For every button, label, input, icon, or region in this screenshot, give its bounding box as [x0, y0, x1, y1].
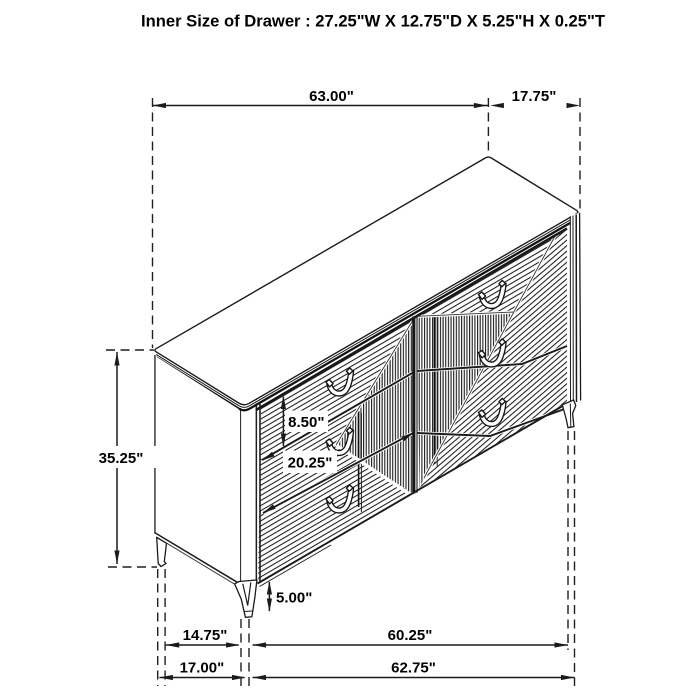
- svg-text:35.25": 35.25": [99, 450, 144, 467]
- svg-text:14.75": 14.75": [183, 627, 228, 644]
- svg-text:60.25": 60.25": [388, 627, 433, 644]
- svg-text:17.75": 17.75": [512, 88, 557, 105]
- svg-text:Inner Size of Drawer : 27.25"W: Inner Size of Drawer : 27.25"W X 12.75"D…: [141, 12, 605, 31]
- svg-text:20.25": 20.25": [288, 455, 333, 472]
- svg-text:62.75": 62.75": [391, 660, 436, 677]
- svg-text:17.00": 17.00": [180, 660, 225, 677]
- svg-text:63.00": 63.00": [309, 88, 354, 105]
- svg-text:8.50": 8.50": [288, 414, 324, 431]
- svg-text:5.00": 5.00": [276, 590, 312, 607]
